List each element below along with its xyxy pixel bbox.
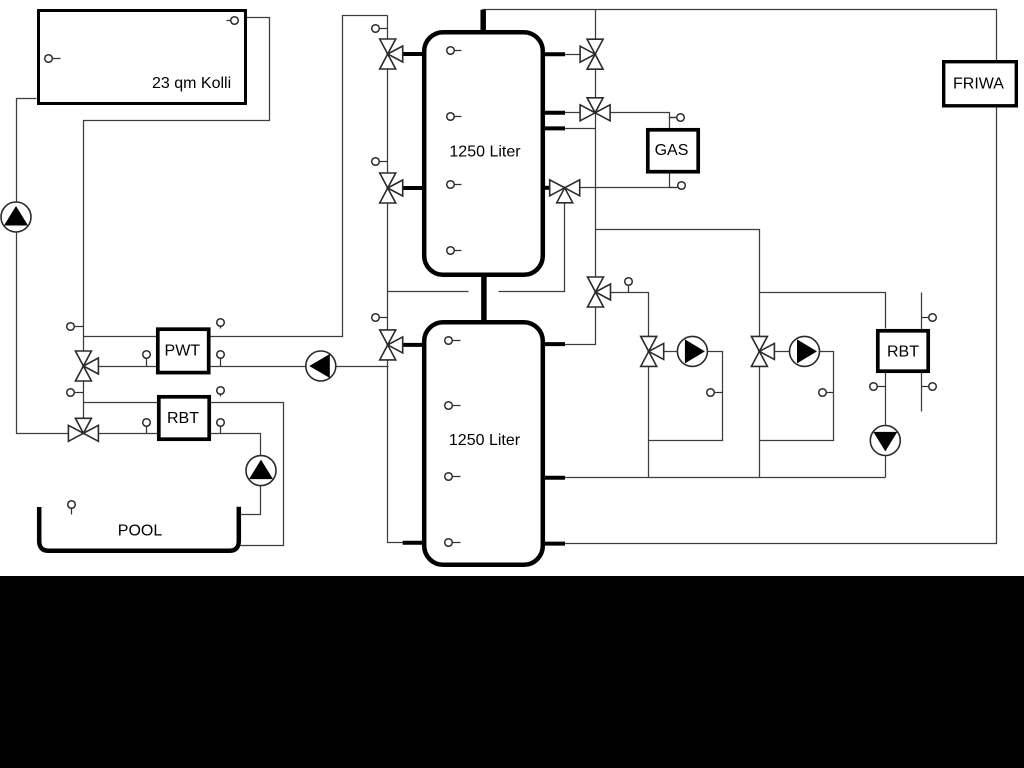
svg-text:23 qm Kolli: 23 qm Kolli — [152, 75, 231, 92]
svg-text:PWT: PWT — [165, 343, 201, 360]
svg-text:FRIWA: FRIWA — [953, 75, 1004, 92]
svg-text:1250 Liter: 1250 Liter — [449, 432, 521, 449]
svg-text:RBT: RBT — [887, 343, 919, 360]
svg-text:1250 Liter: 1250 Liter — [449, 144, 521, 161]
svg-text:RBT: RBT — [167, 410, 199, 427]
svg-text:GAS: GAS — [655, 142, 689, 159]
svg-text:POOL: POOL — [118, 523, 163, 540]
